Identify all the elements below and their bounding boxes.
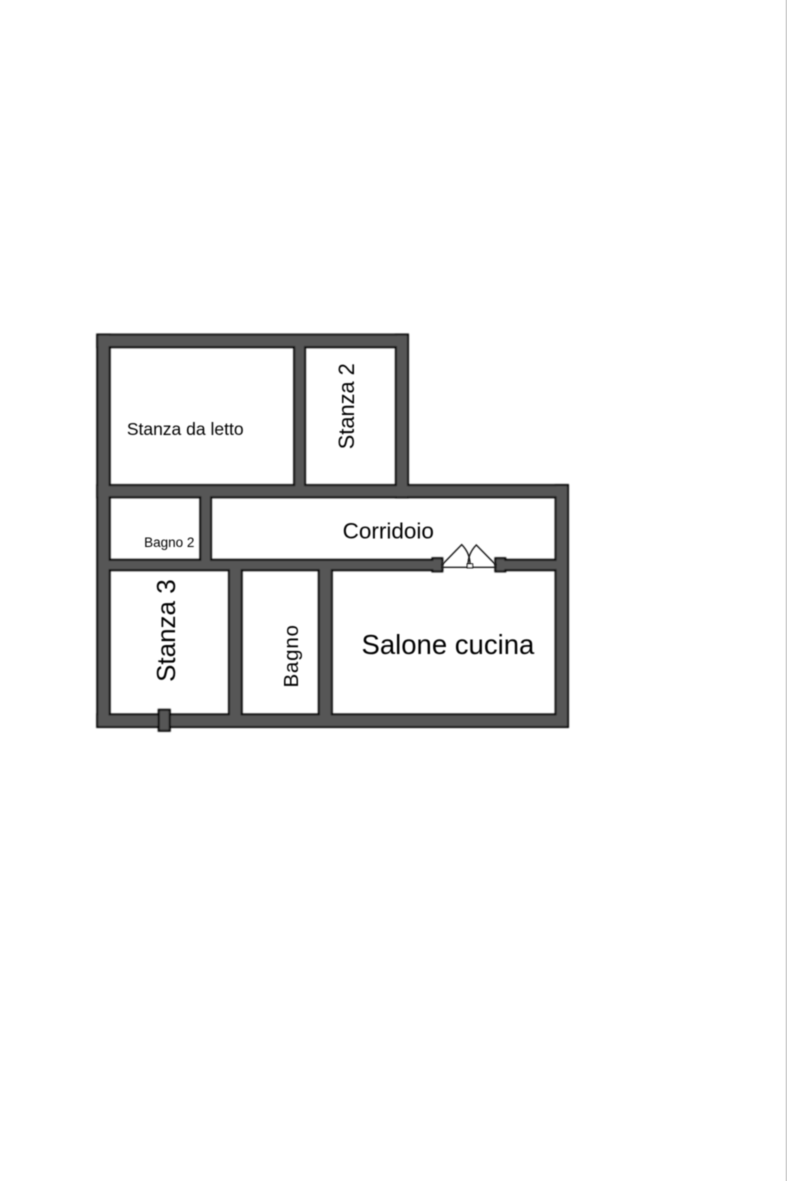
svg-text:Stanza da letto: Stanza da letto [127,419,244,439]
svg-text:Stanza 2: Stanza 2 [334,363,359,449]
svg-text:Salone cucina: Salone cucina [362,629,535,660]
svg-text:Bagno: Bagno [280,624,303,687]
svg-text:Corridoio: Corridoio [343,519,434,544]
svg-text:Bagno 2: Bagno 2 [144,535,194,550]
svg-text:Stanza 3: Stanza 3 [151,579,181,682]
